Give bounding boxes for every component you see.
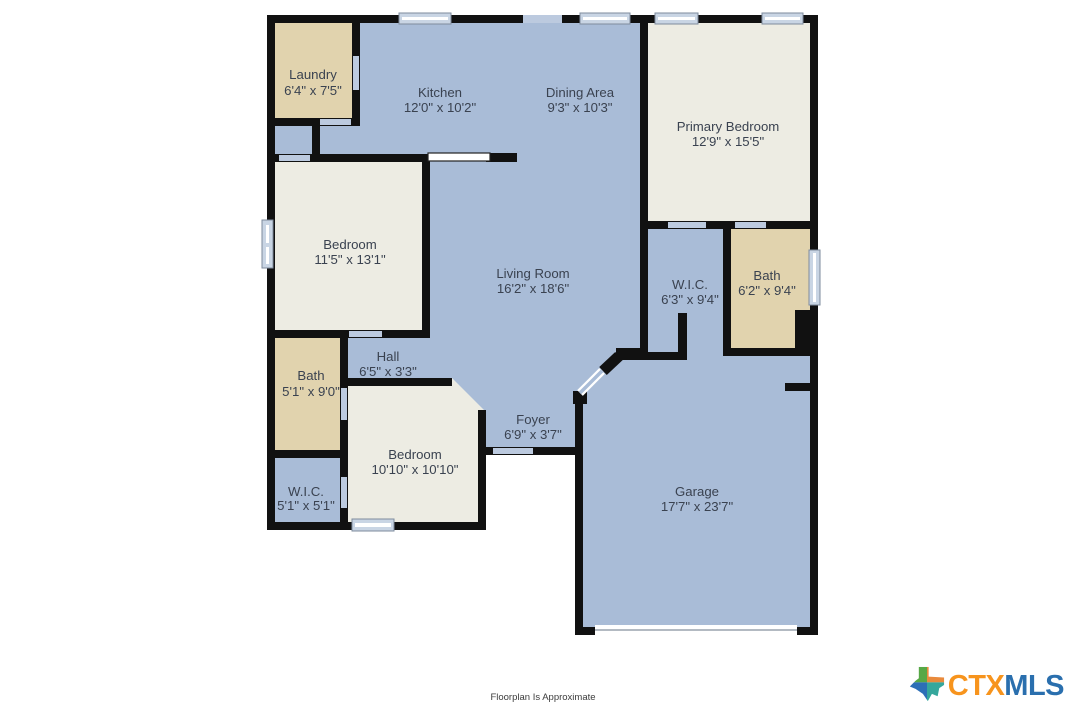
window [262,220,273,268]
room-dims-kitchen: 12'0" x 10'2" [404,100,477,115]
room-dims-bath1: 5'1" x 9'0" [282,384,340,399]
window [352,519,394,531]
window [809,250,820,305]
room-label-laundry: Laundry [289,67,337,82]
room-label-dining: Dining Area [546,85,615,100]
room-label-hall: Hall [377,349,400,364]
door-opening [668,222,706,228]
room-label-bath2: Bath [753,268,780,283]
room-label-living: Living Room [496,266,569,281]
door-opening [349,331,382,337]
front-door-opening [493,448,533,454]
logo-text-ctx: CTX [948,670,1005,703]
door-opening [320,119,351,125]
patio-door-opening [523,15,562,23]
room-label-bath1: Bath [297,368,324,383]
door-opening [353,56,359,90]
room-dims-bedroom2: 10'10" x 10'10" [372,462,459,477]
room-label-wic1: W.I.C. [288,484,324,499]
window [580,13,630,24]
room-label-primary: Primary Bedroom [677,119,780,134]
logo-text-mls: MLS [1004,670,1064,703]
floorplan-page: Laundry 6'4" x 7'5" Kitchen 12'0" x 10'2… [0,0,1086,724]
room-label-bedroom1: Bedroom [323,237,377,252]
door-opening [735,222,766,228]
window [762,13,803,24]
room-dims-hall: 6'5" x 3'3" [359,364,417,379]
room-label-wic2: W.I.C. [672,277,708,292]
room-dims-wic1: 5'1" x 5'1" [277,498,335,513]
room-dims-wic2: 6'3" x 9'4" [661,292,719,307]
room-dims-foyer: 6'9" x 3'7" [504,427,562,442]
room-label-garage: Garage [675,484,719,499]
room-dims-dining: 9'3" x 10'3" [548,100,613,115]
kitchen-counter [428,153,490,161]
door-opening [341,477,347,508]
room-dims-bath2: 6'2" x 9'4" [738,283,796,298]
room-label-foyer: Foyer [516,412,550,427]
door-opening [341,388,347,420]
room-fills [267,15,818,635]
room-dims-bedroom1: 11'5" x 13'1" [314,252,386,267]
room-dims-living: 16'2" x 18'6" [497,281,570,296]
texas-state-icon [909,664,945,709]
floorplan-svg: Laundry 6'4" x 7'5" Kitchen 12'0" x 10'2… [0,0,1086,724]
room-dims-garage: 17'7" x 23'7" [661,499,734,514]
garage-door [595,625,797,635]
room-dims-primary: 12'9" x 15'5" [692,134,765,149]
room-dims-laundry: 6'4" x 7'5" [284,83,342,98]
window [655,13,698,24]
door-opening [279,155,310,161]
room-label-bedroom2: Bedroom [388,447,442,462]
ctxmls-logo: CTX MLS [909,664,1064,708]
window [399,13,451,24]
room-label-kitchen: Kitchen [418,85,462,100]
